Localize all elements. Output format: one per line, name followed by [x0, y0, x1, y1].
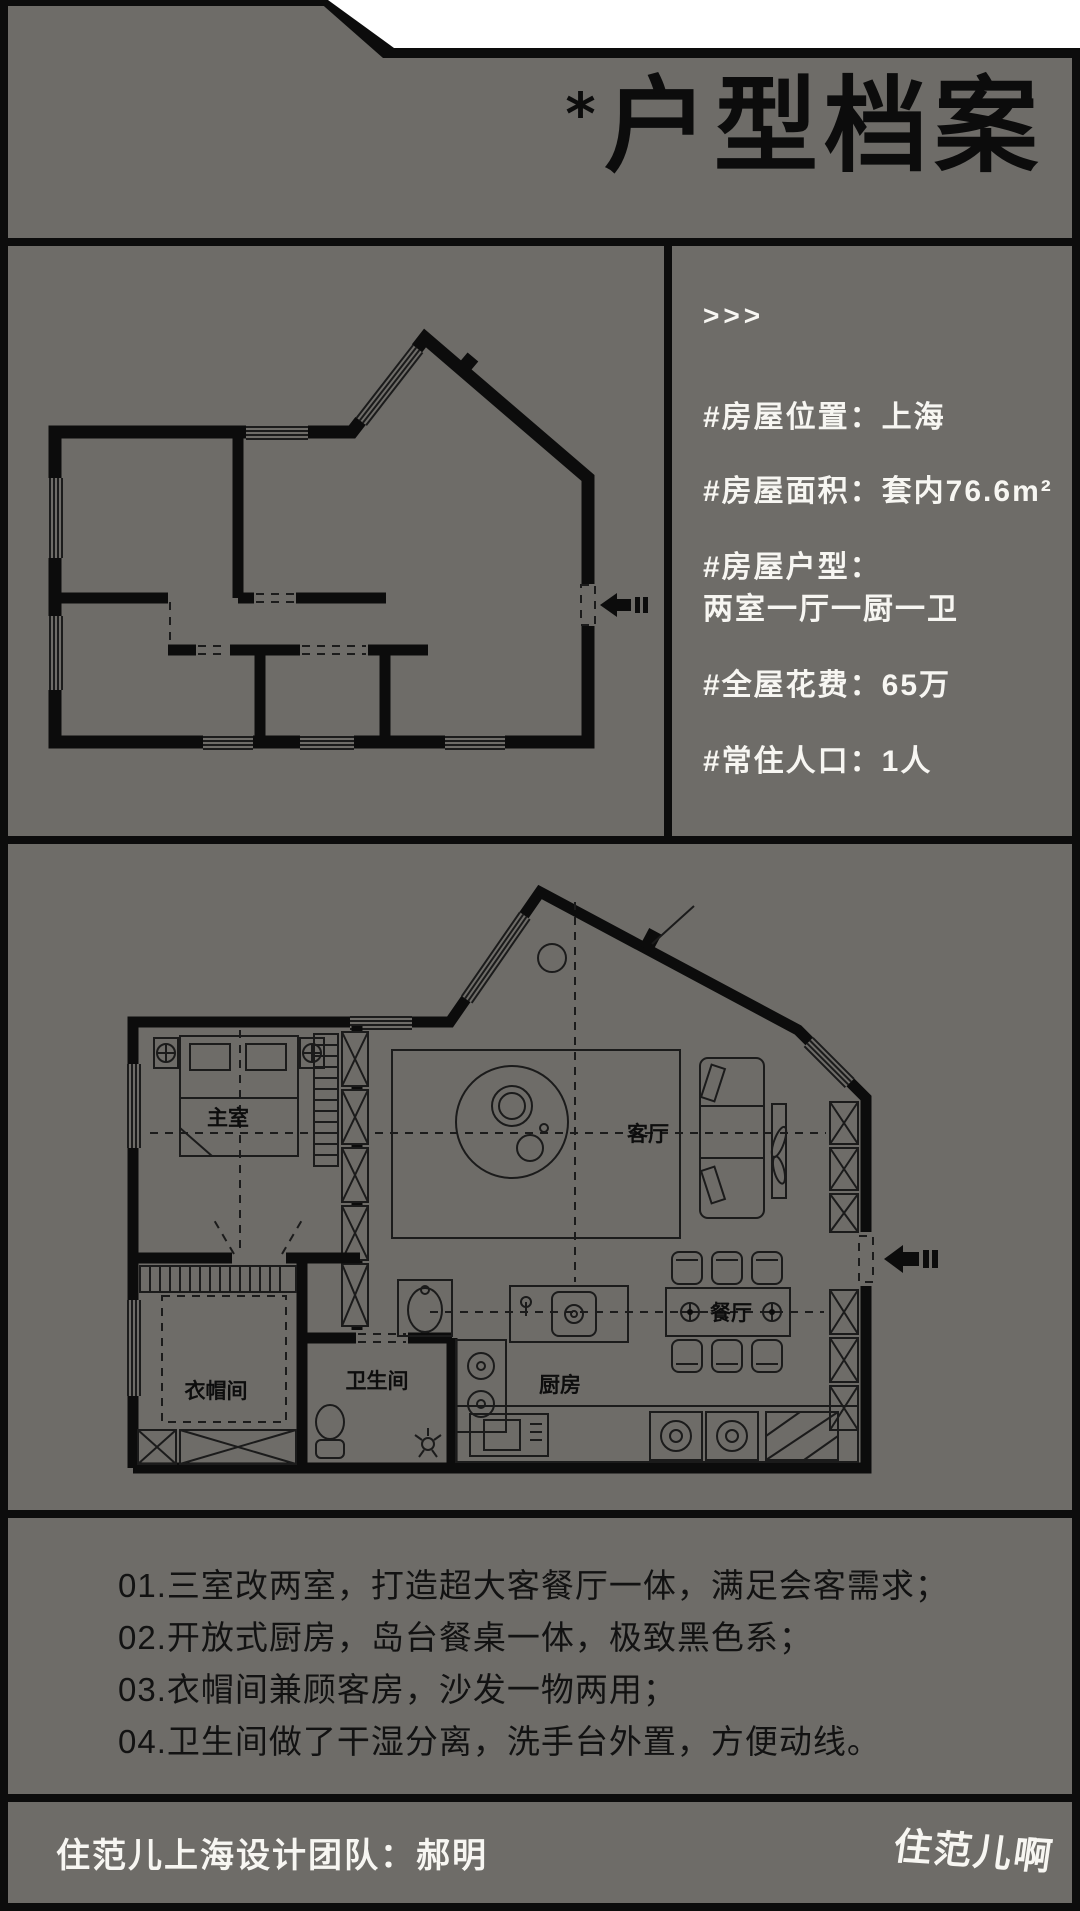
- dining: 餐厅: [666, 1252, 790, 1372]
- highlight-item: 01.三室改两室，打造超大客餐厅一体，满足会客需求；: [118, 1560, 998, 1612]
- room-label-bathroom: 卫生间: [346, 1369, 409, 1393]
- bedroom: 主室: [133, 1030, 360, 1258]
- cloakroom: 衣帽间: [138, 1258, 302, 1468]
- room-label-cloakroom: 衣帽间: [185, 1379, 248, 1403]
- room-label-dining: 餐厅: [710, 1301, 752, 1325]
- detailed-entry-arrow-icon: [884, 1245, 938, 1273]
- team-credit: 住范儿上海设计团队：郝明: [56, 1828, 488, 1877]
- living-room: 客厅: [392, 1050, 789, 1238]
- bathroom: 卫生间: [302, 1280, 452, 1468]
- overview-entry-arrow-icon: [600, 593, 648, 617]
- room-label-bedroom: 主室: [207, 1106, 249, 1130]
- poster-page: *户型档案 >>> #房屋位置：上海 #房屋面积：套内76.6m² #房屋户型：…: [0, 0, 1080, 1911]
- room-label-living: 客厅: [627, 1122, 669, 1146]
- watermark: 住范儿啊: [891, 1815, 1058, 1881]
- overview-floorplan: [47, 338, 648, 750]
- room-label-kitchen: 厨房: [539, 1373, 581, 1397]
- highlight-item: 02.开放式厨房，岛台餐桌一体，极致黑色系；: [118, 1612, 998, 1664]
- highlight-item: 03.衣帽间兼顾客房，沙发一物两用；: [118, 1664, 998, 1716]
- highlights-list: 01.三室改两室，打造超大客餐厅一体，满足会客需求； 02.开放式厨房，岛台餐桌…: [118, 1560, 998, 1768]
- detailed-floorplan: 主室 客厅: [125, 892, 938, 1468]
- highlight-item: 04.卫生间做了干湿分离，洗手台外置，方便动线。: [118, 1716, 998, 1768]
